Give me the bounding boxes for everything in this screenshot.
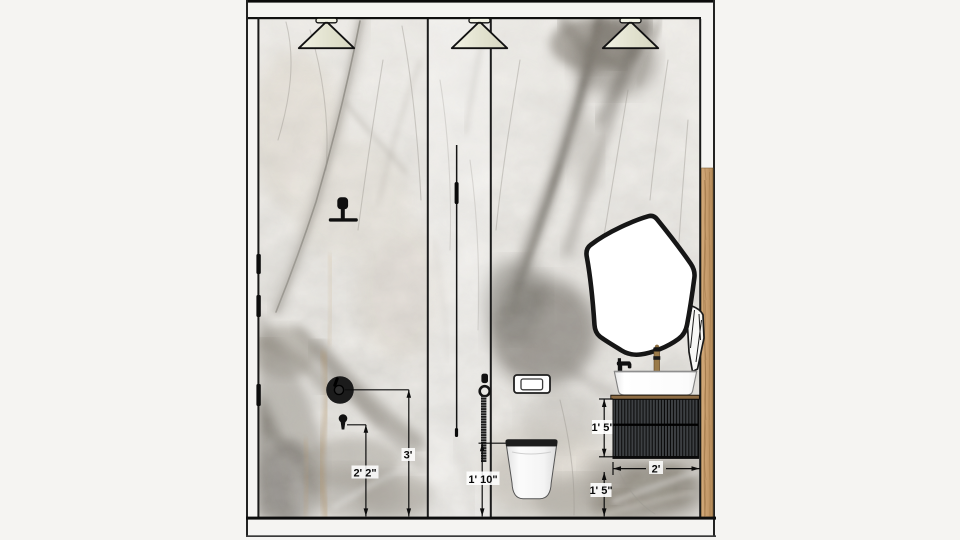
svg-text:1' 5": 1' 5" bbox=[591, 422, 614, 434]
svg-text:1' 5": 1' 5" bbox=[589, 485, 612, 497]
svg-text:1' 10": 1' 10" bbox=[468, 474, 497, 486]
svg-text:2' 2": 2' 2" bbox=[353, 468, 376, 480]
svg-text:2': 2' bbox=[652, 463, 661, 475]
svg-text:3': 3' bbox=[404, 450, 413, 462]
